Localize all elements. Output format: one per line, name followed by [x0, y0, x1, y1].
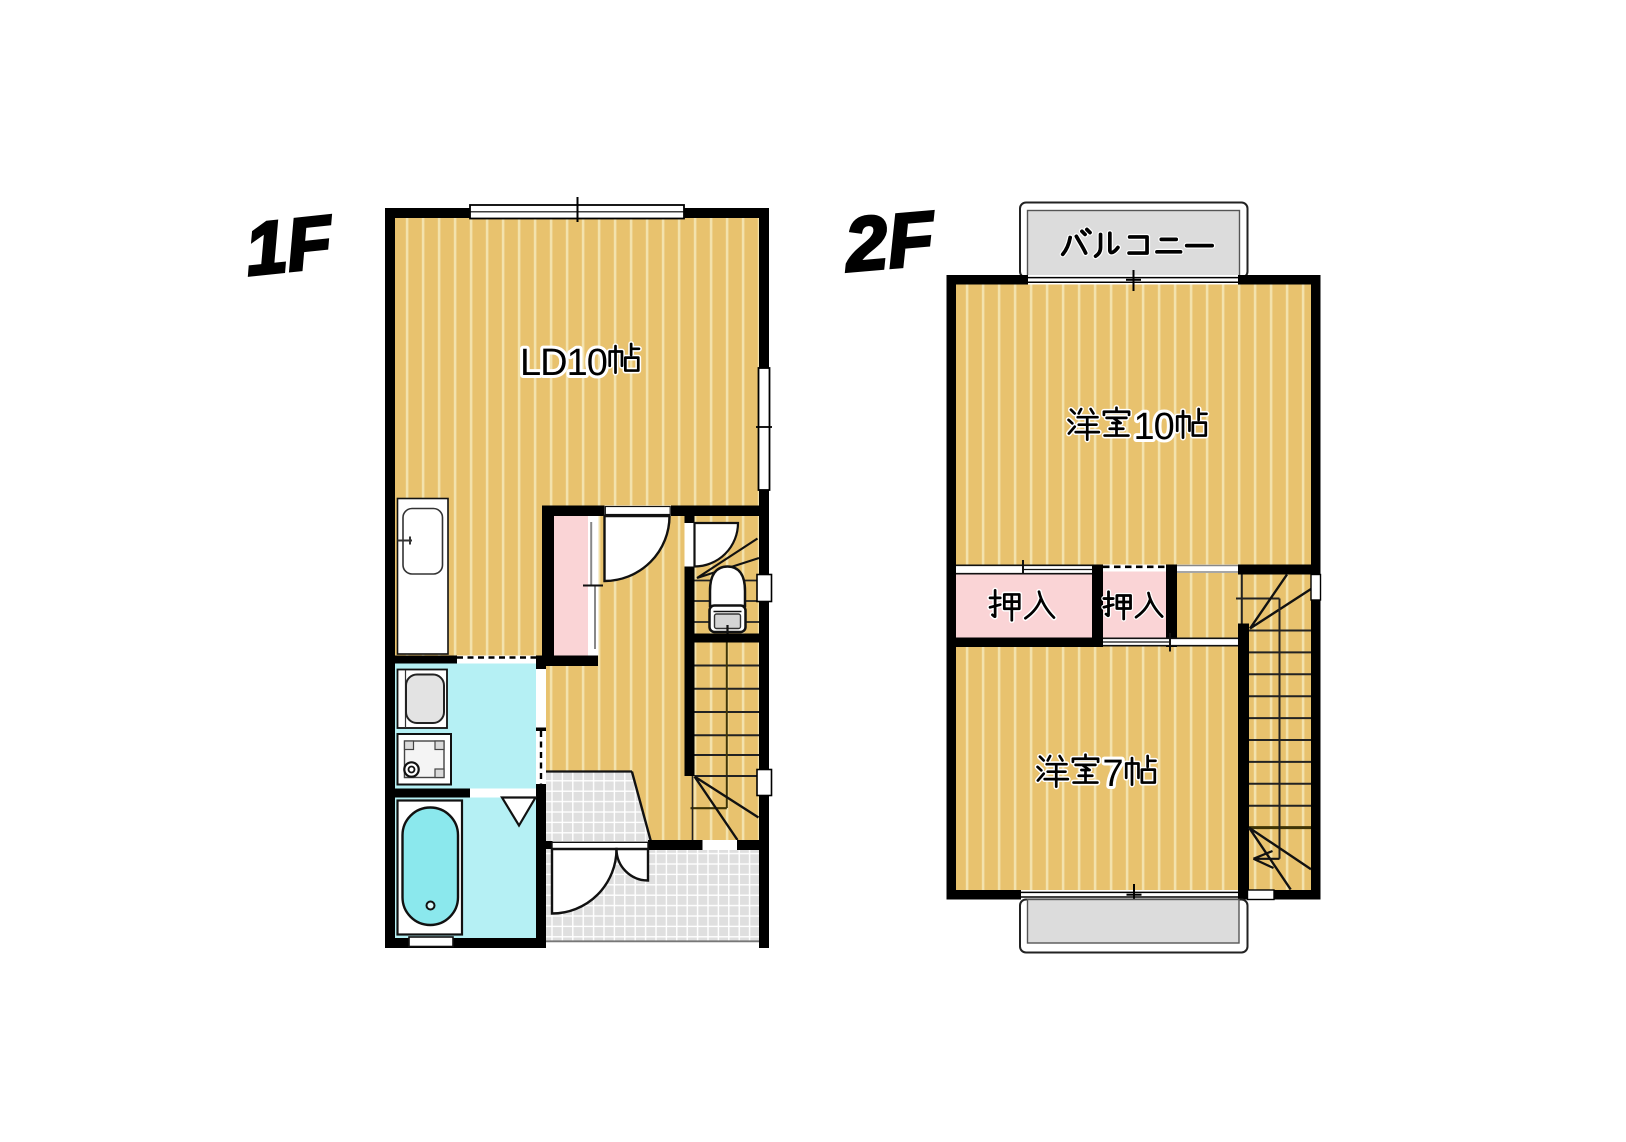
svg-text:10: 10	[1134, 406, 1174, 448]
svg-text:7: 7	[1103, 753, 1124, 795]
svg-text:LD10: LD10	[520, 342, 607, 384]
svg-text:1F: 1F	[241, 199, 337, 291]
svg-text:2F: 2F	[840, 196, 940, 289]
